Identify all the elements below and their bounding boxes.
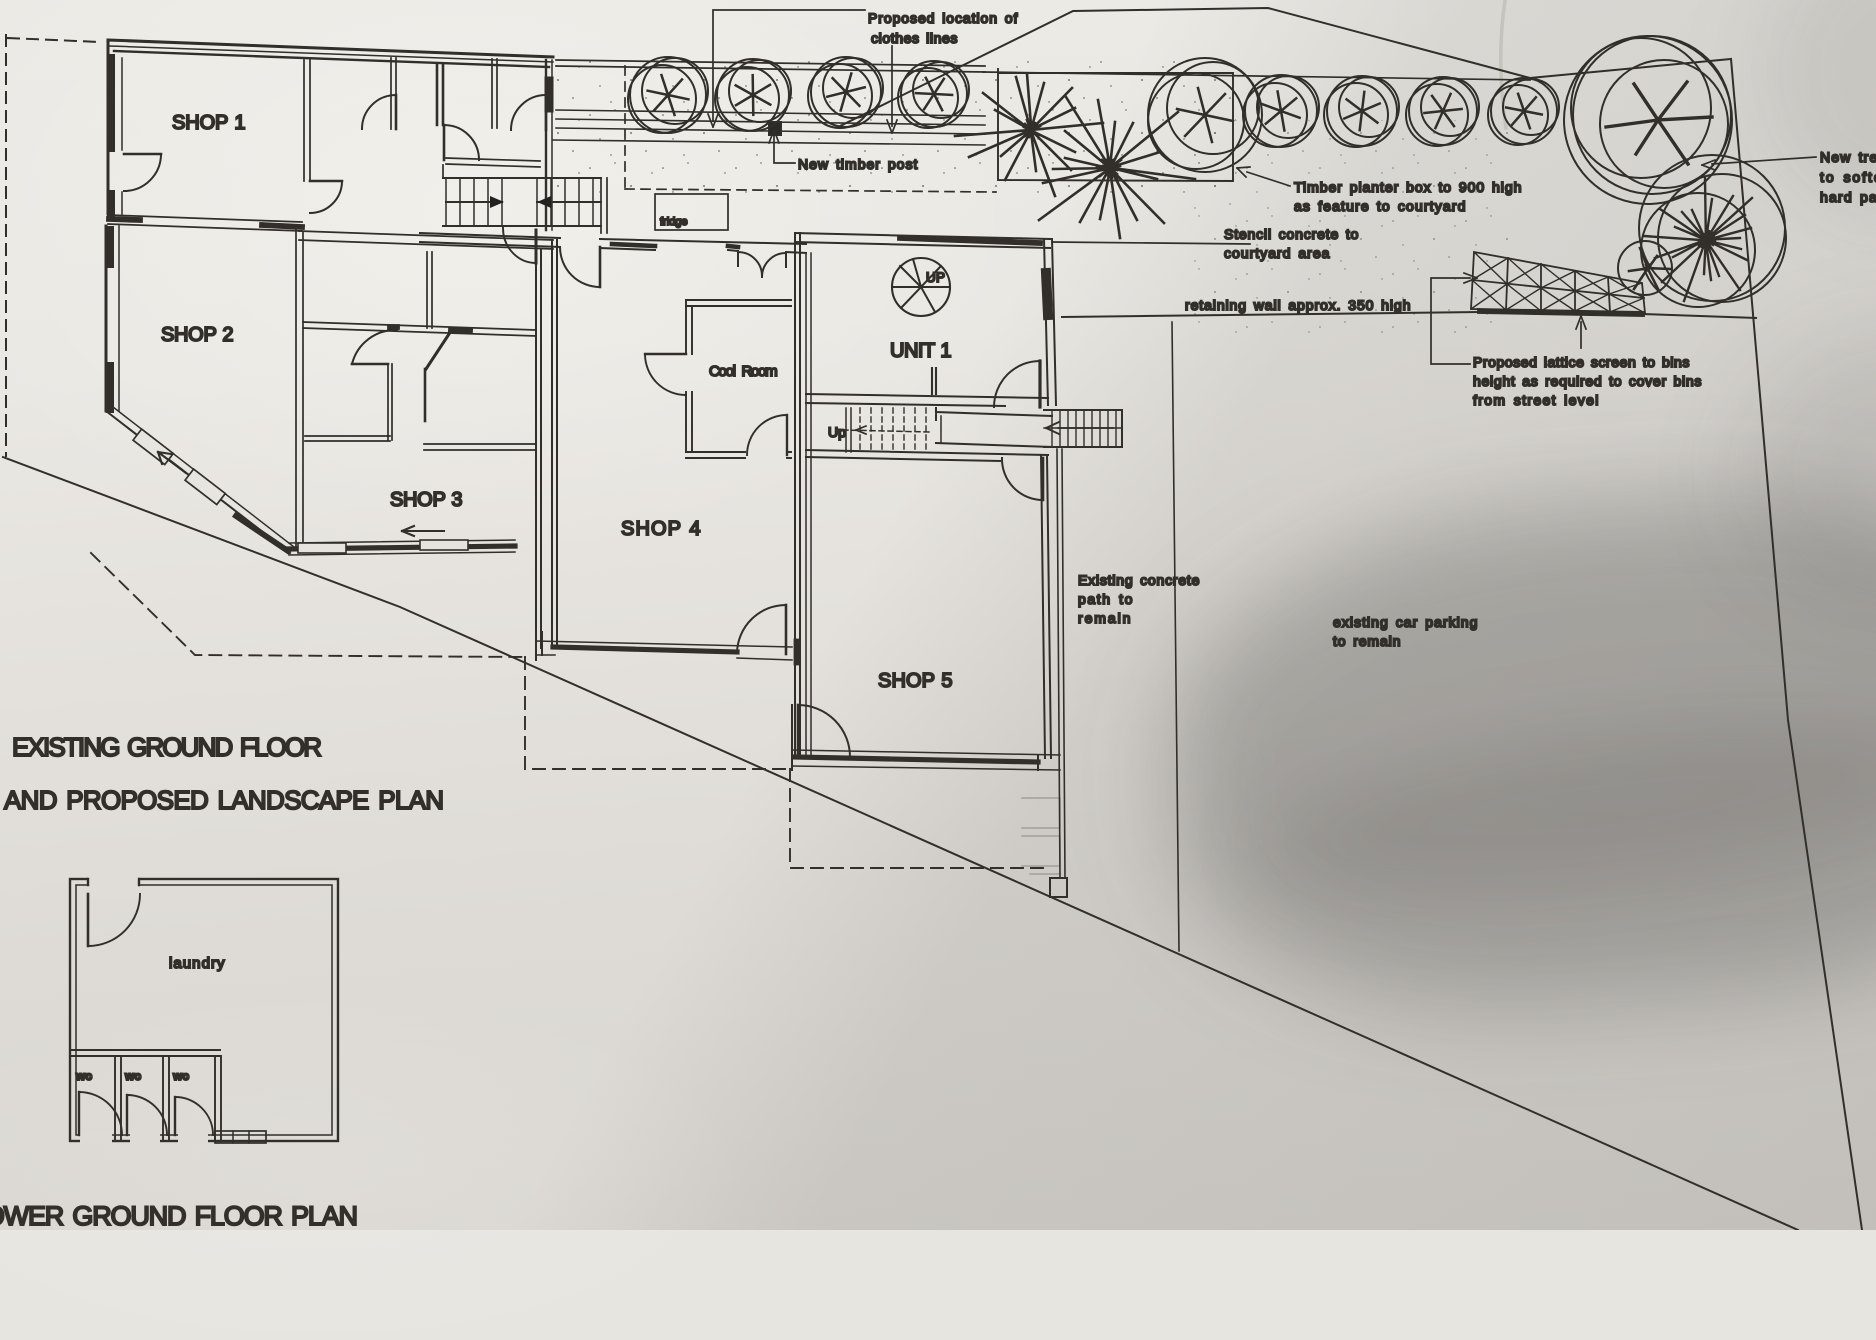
svg-text:laundry: laundry: [169, 955, 225, 972]
svg-text:SHOP 4: SHOP 4: [621, 518, 701, 540]
svg-text:hard pavi: hard pavi: [1820, 189, 1876, 205]
svg-text:LOWER GROUND FLOOR PLAN: LOWER GROUND FLOOR PLAN: [0, 1201, 358, 1230]
svg-text:height as required to cover bi: height as required to cover bins: [1473, 373, 1702, 389]
svg-text:path to: path to: [1078, 591, 1133, 607]
svg-text:Existing concrete: Existing concrete: [1078, 572, 1200, 588]
svg-text:retaining wall approx. 350 hig: retaining wall approx. 350 high: [1185, 297, 1411, 313]
svg-text:fridge: fridge: [660, 216, 688, 228]
svg-text:SHOP 3: SHOP 3: [390, 489, 463, 511]
svg-text:EXISTING GROUND FLOOR: EXISTING GROUND FLOOR: [12, 732, 322, 762]
svg-text:clothes lines: clothes lines: [871, 30, 958, 46]
svg-text:Stencil concrete to: Stencil concrete to: [1224, 226, 1359, 242]
svg-text:as feature to courtyard: as feature to courtyard: [1294, 198, 1466, 214]
svg-text:SHOP 1: SHOP 1: [172, 112, 246, 134]
svg-text:New timber post: New timber post: [798, 156, 918, 172]
svg-text:to remain: to remain: [1333, 633, 1401, 649]
svg-text:AND PROPOSED LANDSCAPE PLAN: AND PROPOSED LANDSCAPE PLAN: [4, 785, 444, 815]
svg-text:Up: Up: [828, 424, 846, 440]
svg-text:existing car parking: existing car parking: [1333, 614, 1478, 630]
svg-text:New trees: New trees: [1820, 149, 1876, 165]
svg-text:courtyard area: courtyard area: [1224, 245, 1330, 261]
svg-text:remain: remain: [1078, 610, 1131, 626]
svg-text:wc: wc: [124, 1069, 141, 1083]
svg-text:SHOP 2: SHOP 2: [161, 324, 234, 346]
svg-text:SHOP 5: SHOP 5: [878, 670, 953, 692]
svg-text:Proposed lattice screen to bin: Proposed lattice screen to bins: [1473, 354, 1690, 370]
svg-text:Timber planter box to 900 high: Timber planter box to 900 high: [1294, 179, 1522, 195]
svg-text:Proposed location of: Proposed location of: [868, 10, 1018, 26]
svg-text:to soften: to soften: [1820, 169, 1876, 185]
svg-text:wc: wc: [75, 1069, 92, 1083]
svg-text:UNIT 1: UNIT 1: [890, 340, 952, 362]
svg-text:wc: wc: [172, 1069, 189, 1083]
svg-text:UP: UP: [926, 270, 945, 285]
svg-text:Cool Room: Cool Room: [709, 363, 778, 380]
svg-text:from street level: from street level: [1473, 392, 1599, 408]
